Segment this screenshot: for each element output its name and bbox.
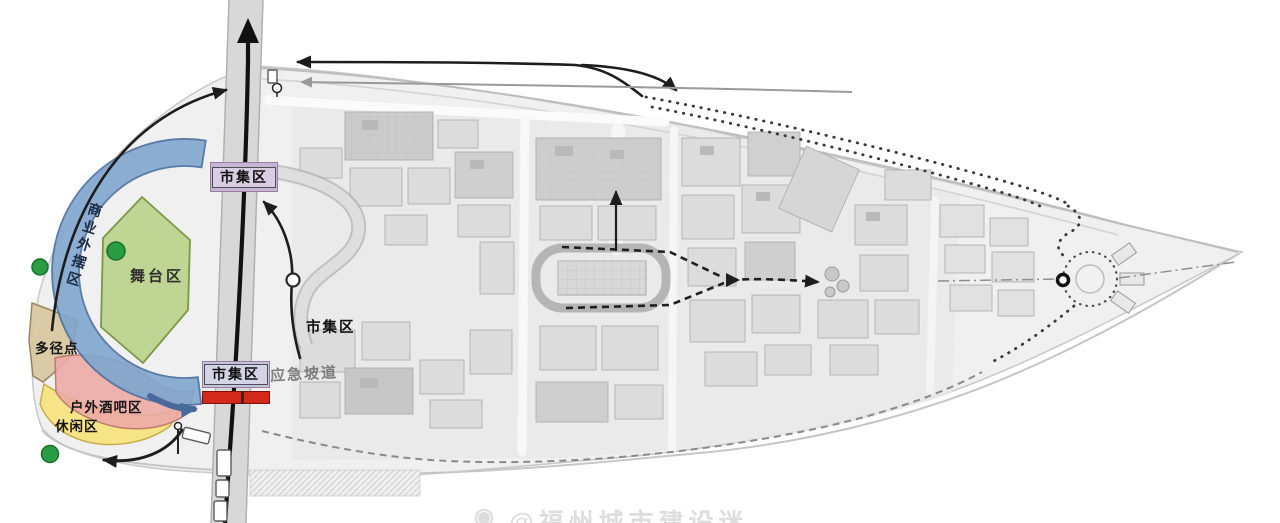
zone-label-leisure: 休闲区 bbox=[55, 415, 99, 435]
node-white-circle bbox=[287, 274, 300, 287]
market-zone-badge-bottom: 市集区 bbox=[202, 361, 270, 388]
watermark: ◉ @福州城市建设迷 bbox=[474, 503, 748, 523]
watermark-text: @福州城市建设迷 bbox=[509, 503, 748, 523]
road-line-tick bbox=[241, 391, 244, 404]
zone-label-multipath: 多径点 bbox=[35, 337, 79, 357]
market-zone-badge-bottom-text: 市集区 bbox=[204, 364, 268, 385]
event-dot bbox=[42, 446, 59, 463]
market-zone-badge-top: 市集区 bbox=[210, 162, 278, 192]
node-black-ring bbox=[1058, 275, 1069, 286]
site-plan-canvas: 商业外摆区 舞台区 多径点 户外酒吧区 休闲区 市集区 市集区 市集区 应急坡道… bbox=[0, 0, 1280, 523]
market-zone-label-mid: 市集区 bbox=[306, 316, 356, 337]
market-red-bar bbox=[202, 391, 270, 404]
zone-label-outdoor-bar: 户外酒吧区 bbox=[70, 396, 143, 416]
event-dot bbox=[107, 242, 125, 260]
watermark-logo-icon: ◉ bbox=[474, 503, 499, 523]
market-zone-badge-top-text: 市集区 bbox=[212, 167, 276, 188]
emergency-ramp-label: 应急坡道 bbox=[269, 361, 338, 386]
event-dot bbox=[32, 259, 48, 275]
site-plan-svg bbox=[0, 0, 1280, 523]
zone-label-stage: 舞台区 bbox=[130, 265, 184, 286]
